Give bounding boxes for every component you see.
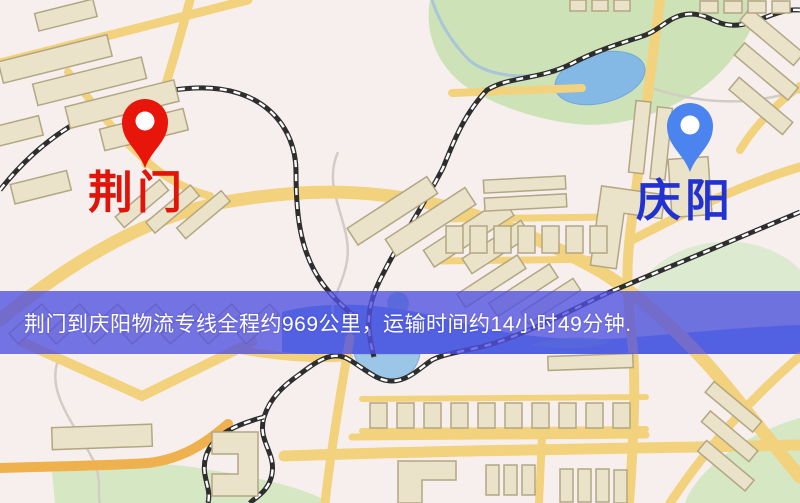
destination-pin[interactable] — [660, 98, 720, 178]
destination-pin-icon — [667, 103, 713, 172]
map-view: 荆门到庆阳物流专线全程约969公里，运输时间约14小时49分钟. 荆门 庆阳 — [0, 0, 800, 503]
info-banner: 荆门到庆阳物流专线全程约969公里，运输时间约14小时49分钟. — [0, 291, 800, 354]
destination-label: 庆阳 — [636, 178, 734, 223]
origin-pin[interactable] — [115, 94, 175, 174]
destination-pin-hole — [681, 116, 700, 135]
origin-label: 荆门 — [88, 170, 186, 215]
banner-text: 荆门到庆阳物流专线全程约969公里，运输时间约14小时49分钟. — [24, 308, 632, 338]
map-canvas[interactable] — [0, 0, 800, 503]
origin-pin-icon — [122, 99, 168, 168]
origin-pin-hole — [136, 112, 155, 131]
